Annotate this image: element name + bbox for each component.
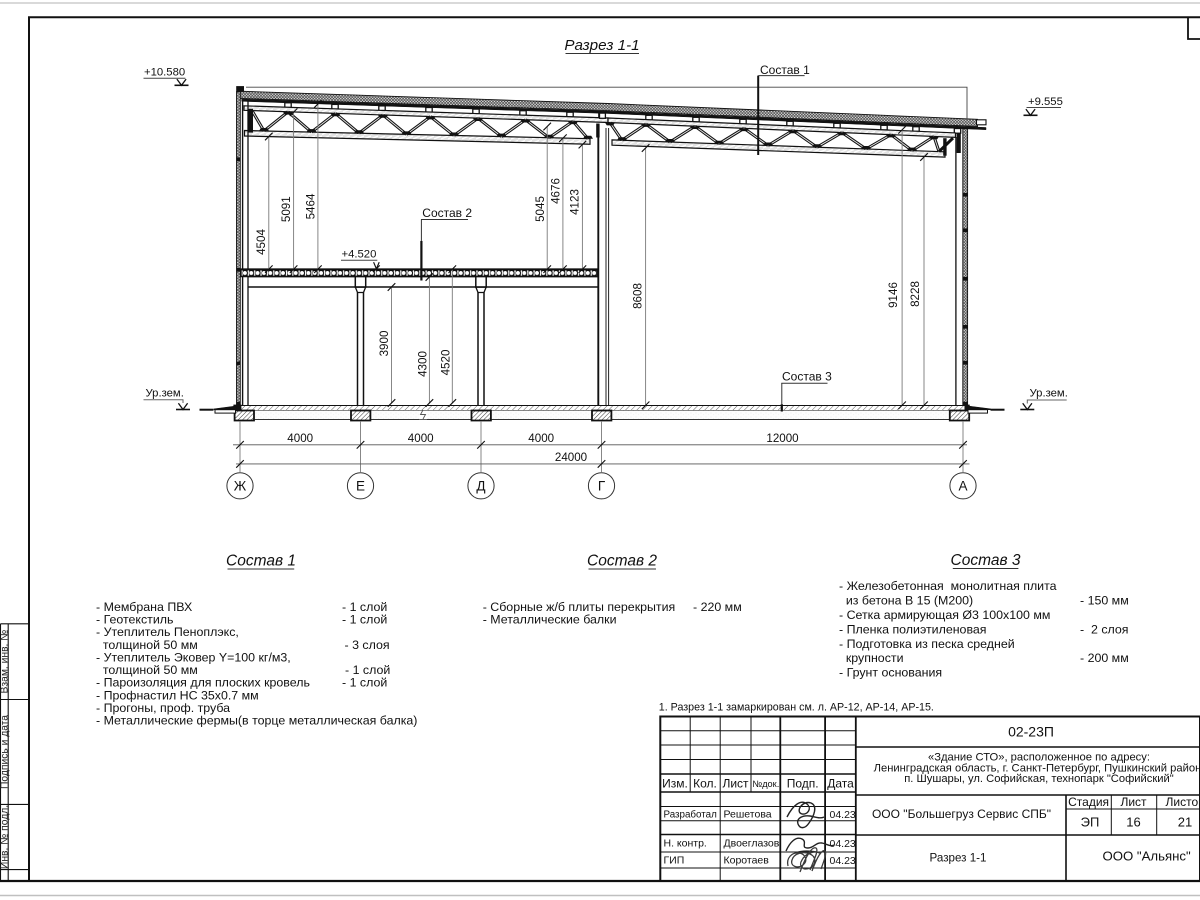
svg-text:4676: 4676 (550, 178, 563, 204)
svg-text:4300: 4300 (416, 351, 429, 377)
svg-text:3900: 3900 (378, 331, 391, 357)
svg-text:Взам. инв. №: Взам. инв. № (0, 630, 10, 694)
svg-text:Н. контр.: Н. контр. (664, 838, 707, 850)
svg-text:+4.520: +4.520 (342, 249, 377, 261)
svg-text:Д: Д (476, 479, 485, 494)
svg-text:Стадия: Стадия (1068, 795, 1109, 809)
svg-text:ГИП: ГИП (664, 855, 685, 867)
svg-text:9146: 9146 (887, 282, 900, 308)
svg-text:- 3 слоя: - 3 слоя (345, 638, 390, 652)
svg-text:Листов: Листов (1166, 795, 1200, 809)
svg-text:Разрез 1-1: Разрез 1-1 (564, 37, 639, 54)
svg-text:- 2 слоя: - 2 слоя (1080, 622, 1129, 636)
svg-text:Изм.: Изм. (662, 777, 688, 791)
svg-text:+9.555: +9.555 (1028, 96, 1063, 108)
svg-text:Е: Е (356, 479, 365, 494)
svg-text:- Металлические фермы(в торце: - Металлические фермы(в торце металличес… (96, 714, 417, 728)
svg-text:Лист: Лист (1120, 795, 1147, 809)
svg-text:Ур.зем.: Ур.зем. (146, 387, 184, 399)
svg-text:п. Шушары, ул. Софийская, техн: п. Шушары, ул. Софийская, технопарк "Соф… (904, 773, 1174, 785)
svg-text:- Грунт основания: - Грунт основания (839, 666, 942, 680)
svg-text:04.23: 04.23 (830, 809, 856, 821)
svg-text:ЭП: ЭП (1081, 815, 1100, 830)
svg-text:№док.: №док. (752, 779, 779, 789)
svg-text:ООО "Большегруз Сервис СПБ": ООО "Большегруз Сервис СПБ" (872, 807, 1051, 821)
svg-text:1. Разрез 1-1 замаркирован см.: 1. Разрез 1-1 замаркирован см. л. АР-12,… (659, 702, 934, 714)
svg-text:5091: 5091 (280, 196, 293, 222)
svg-text:02-23П: 02-23П (1008, 724, 1054, 740)
svg-text:- Подготовка из песка средней: - Подготовка из песка средней (839, 637, 1015, 651)
svg-text:Коротаев: Коротаев (724, 855, 770, 867)
svg-text:Состав 3: Состав 3 (782, 369, 832, 383)
svg-text:+10.580: +10.580 (144, 67, 185, 79)
svg-text:8228: 8228 (909, 281, 922, 307)
svg-text:4000: 4000 (408, 432, 434, 445)
svg-text:Состав 3: Состав 3 (951, 552, 1021, 569)
svg-text:- Железобетонная монолитная п: - Железобетонная монолитная плита (839, 579, 1057, 593)
svg-text:- 150 мм: - 150 мм (1080, 594, 1129, 608)
svg-text:- 1 слой: - 1 слой (342, 612, 387, 626)
svg-text:ООО "Альянс": ООО "Альянс" (1103, 849, 1191, 864)
svg-text:- Металлические балки: - Металлические балки (483, 613, 617, 627)
svg-text:5045: 5045 (534, 196, 547, 222)
svg-text:21: 21 (1178, 815, 1192, 830)
svg-text:Разработал: Разработал (664, 809, 718, 820)
svg-text:12000: 12000 (766, 432, 798, 445)
svg-text:16: 16 (1126, 815, 1140, 830)
svg-text:Инв. № подл.: Инв. № подл. (0, 805, 10, 869)
svg-text:из бетона В 15 (М200): из бетона В 15 (М200) (839, 594, 973, 608)
svg-text:4123: 4123 (568, 189, 581, 215)
svg-text:Состав 1: Состав 1 (226, 553, 296, 570)
svg-text:- Сетка армирующая Ø3 100х100: - Сетка армирующая Ø3 100х100 мм (839, 608, 1050, 622)
svg-text:Состав 2: Состав 2 (422, 206, 472, 220)
svg-text:04.23: 04.23 (830, 855, 856, 867)
svg-text:Решетова: Решетова (724, 808, 772, 820)
svg-text:Разрез 1-1: Разрез 1-1 (930, 852, 987, 865)
svg-text:5464: 5464 (304, 193, 317, 219)
svg-text:- Пленка полиэтиленовая: - Пленка полиэтиленовая (839, 622, 987, 636)
svg-text:4000: 4000 (528, 432, 554, 445)
svg-text:04.23: 04.23 (830, 838, 856, 850)
svg-text:- 1 слой: - 1 слой (342, 676, 387, 690)
svg-text:Двоеглазов: Двоеглазов (724, 838, 780, 850)
svg-text:4520: 4520 (439, 350, 452, 376)
svg-text:А: А (958, 479, 967, 494)
svg-text:- 220 мм: - 220 мм (693, 600, 742, 614)
svg-text:4000: 4000 (287, 432, 313, 445)
svg-text:Лист: Лист (722, 777, 749, 791)
svg-text:Состав 1: Состав 1 (760, 63, 810, 77)
svg-text:Состав 2: Состав 2 (587, 553, 657, 570)
svg-text:Подп.: Подп. (787, 777, 819, 791)
svg-text:Ж: Ж (234, 479, 247, 494)
svg-text:крупности: крупности (839, 651, 904, 665)
svg-text:4504: 4504 (255, 229, 268, 255)
svg-text:Ур.зем.: Ур.зем. (1030, 387, 1068, 399)
svg-text:Кол.: Кол. (693, 777, 717, 791)
svg-text:Дата: Дата (827, 777, 854, 791)
svg-text:Подпись и дата: Подпись и дата (0, 715, 10, 789)
svg-text:Г: Г (598, 479, 606, 494)
svg-text:8608: 8608 (631, 283, 644, 309)
svg-text:24000: 24000 (555, 451, 587, 464)
svg-text:- 200 мм: - 200 мм (1080, 651, 1129, 665)
